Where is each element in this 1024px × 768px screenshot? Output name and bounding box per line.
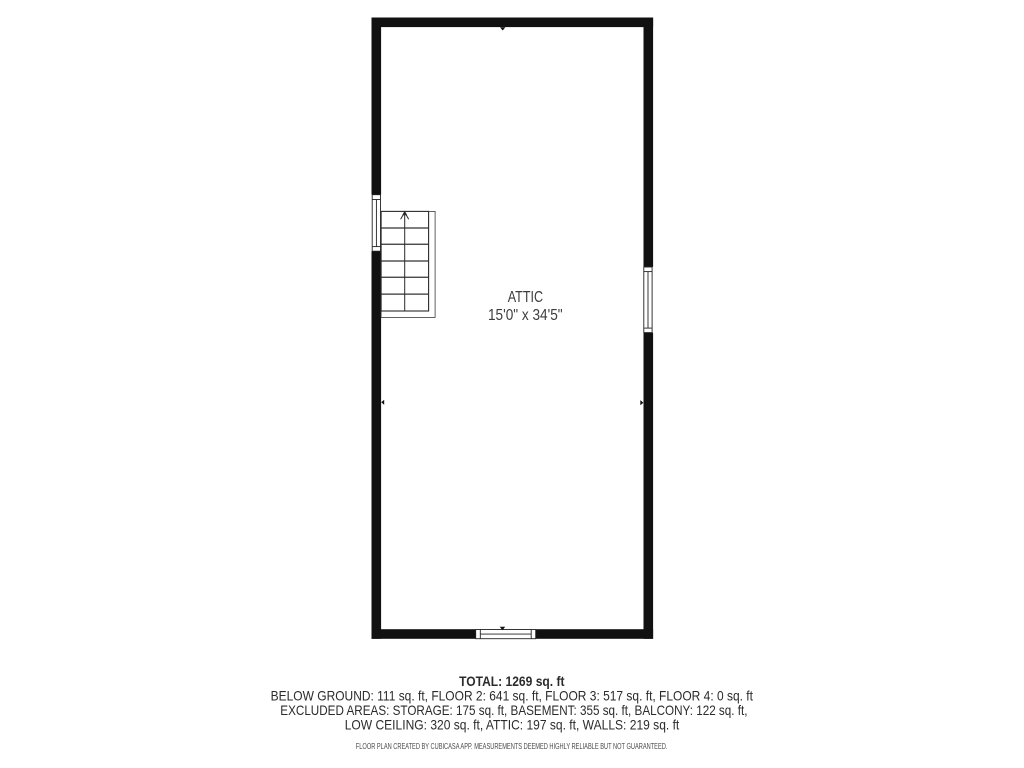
svg-text:ATTIC: ATTIC xyxy=(508,289,543,306)
svg-text:TOTAL: 1269 sq. ft: TOTAL: 1269 sq. ft xyxy=(459,674,565,689)
svg-text:LOW CEILING: 320 sq. ft, ATTIC: LOW CEILING: 320 sq. ft, ATTIC: 197 sq. … xyxy=(345,717,680,732)
svg-text:BELOW GROUND: 111 sq. ft, FLOO: BELOW GROUND: 111 sq. ft, FLOOR 2: 641 s… xyxy=(271,688,753,703)
svg-text:15'0" x 34'5": 15'0" x 34'5" xyxy=(488,307,563,324)
svg-text:EXCLUDED AREAS: STORAGE: 175 s: EXCLUDED AREAS: STORAGE: 175 sq. ft, BAS… xyxy=(280,703,747,718)
svg-text:FLOOR PLAN CREATED BY CUBICASA: FLOOR PLAN CREATED BY CUBICASA APP. MEAS… xyxy=(356,741,668,751)
